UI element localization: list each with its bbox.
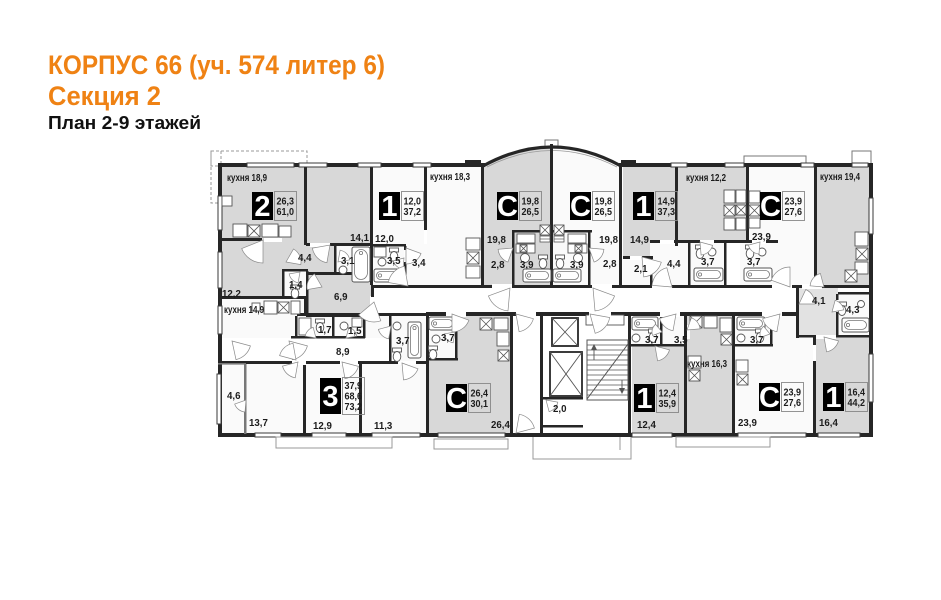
- svg-text:3,9: 3,9: [520, 260, 534, 271]
- svg-text:3,1: 3,1: [341, 256, 355, 267]
- svg-text:2: 2: [254, 191, 270, 223]
- svg-text:1: 1: [635, 191, 651, 223]
- svg-text:2,1: 2,1: [634, 264, 648, 275]
- svg-text:27,6: 27,6: [785, 207, 803, 218]
- svg-text:14,9: 14,9: [630, 235, 649, 246]
- svg-text:1,4: 1,4: [289, 280, 303, 291]
- svg-text:26,4: 26,4: [491, 420, 510, 431]
- svg-text:1: 1: [381, 191, 397, 223]
- svg-text:С: С: [760, 191, 781, 223]
- svg-text:1,7: 1,7: [318, 325, 331, 336]
- svg-text:3,7: 3,7: [396, 336, 409, 347]
- svg-text:12,4: 12,4: [637, 420, 656, 431]
- svg-text:2,8: 2,8: [491, 260, 505, 271]
- svg-text:12,2: 12,2: [222, 289, 241, 300]
- svg-text:37,3: 37,3: [658, 207, 676, 218]
- svg-text:кухня 12,2: кухня 12,2: [686, 173, 726, 184]
- svg-text:26,3: 26,3: [277, 196, 295, 207]
- svg-text:кухня 16,3: кухня 16,3: [687, 359, 727, 370]
- svg-text:3: 3: [322, 381, 338, 413]
- svg-text:23,9: 23,9: [752, 232, 771, 243]
- svg-text:кухня 18,9: кухня 18,9: [227, 173, 267, 184]
- svg-text:6,9: 6,9: [334, 292, 348, 303]
- svg-text:11,3: 11,3: [374, 421, 393, 432]
- svg-text:4,4: 4,4: [298, 253, 312, 264]
- svg-text:19,8: 19,8: [595, 196, 613, 207]
- svg-text:С: С: [759, 382, 780, 414]
- svg-text:37,9: 37,9: [345, 381, 363, 392]
- svg-text:4,1: 4,1: [812, 296, 826, 307]
- svg-text:С: С: [570, 191, 591, 223]
- svg-text:кухня 19,4: кухня 19,4: [820, 172, 860, 183]
- svg-text:12,4: 12,4: [659, 388, 677, 399]
- svg-text:кухня 14,9: кухня 14,9: [224, 305, 264, 316]
- svg-text:КОРПУС 66 (уч. 574 литер 6): КОРПУС 66 (уч. 574 литер 6): [48, 50, 385, 80]
- svg-text:С: С: [446, 383, 467, 415]
- svg-text:23,9: 23,9: [738, 418, 757, 429]
- svg-text:1,5: 1,5: [348, 326, 362, 337]
- svg-text:27,6: 27,6: [784, 398, 802, 409]
- svg-text:23,9: 23,9: [785, 196, 803, 207]
- svg-text:12,9: 12,9: [313, 421, 332, 432]
- svg-text:3,7: 3,7: [441, 333, 454, 344]
- svg-text:4,3: 4,3: [846, 305, 860, 316]
- svg-text:14,9: 14,9: [658, 196, 676, 207]
- svg-text:19,8: 19,8: [487, 235, 506, 246]
- svg-text:26,4: 26,4: [471, 388, 489, 399]
- svg-text:3,7: 3,7: [645, 335, 658, 346]
- svg-text:3,7: 3,7: [701, 257, 714, 268]
- svg-text:26,5: 26,5: [595, 207, 613, 218]
- svg-text:3,5: 3,5: [674, 335, 688, 346]
- svg-text:73,2: 73,2: [345, 402, 363, 413]
- svg-text:61,0: 61,0: [277, 207, 295, 218]
- svg-text:37,2: 37,2: [404, 207, 422, 218]
- svg-text:68,6: 68,6: [345, 392, 363, 403]
- svg-text:44,2: 44,2: [848, 398, 866, 409]
- svg-text:16,4: 16,4: [848, 387, 866, 398]
- svg-text:3,4: 3,4: [412, 258, 426, 269]
- svg-text:30,1: 30,1: [471, 399, 489, 410]
- svg-text:19,8: 19,8: [599, 235, 618, 246]
- svg-text:26,5: 26,5: [522, 207, 540, 218]
- svg-text:кухня 18,3: кухня 18,3: [430, 172, 470, 183]
- svg-text:35,9: 35,9: [659, 399, 677, 410]
- svg-text:16,4: 16,4: [819, 418, 838, 429]
- svg-text:19,8: 19,8: [522, 196, 540, 207]
- svg-text:14,1: 14,1: [350, 233, 369, 244]
- svg-text:С: С: [497, 191, 518, 223]
- svg-text:4,6: 4,6: [227, 391, 241, 402]
- svg-text:3,9: 3,9: [570, 260, 584, 271]
- svg-text:3,7: 3,7: [747, 257, 760, 268]
- svg-text:План 2-9 этажей: План 2-9 этажей: [48, 113, 201, 133]
- svg-text:23,9: 23,9: [784, 387, 802, 398]
- svg-text:12,0: 12,0: [404, 196, 422, 207]
- svg-text:Секция 2: Секция 2: [48, 81, 161, 111]
- svg-text:13,7: 13,7: [249, 418, 268, 429]
- svg-text:1: 1: [636, 383, 652, 415]
- svg-text:4,4: 4,4: [667, 259, 681, 270]
- svg-text:8,9: 8,9: [336, 347, 350, 358]
- svg-text:2,8: 2,8: [603, 259, 617, 270]
- svg-text:12,0: 12,0: [375, 234, 394, 245]
- svg-text:2,0: 2,0: [553, 404, 566, 415]
- svg-text:3,7: 3,7: [750, 335, 763, 346]
- svg-text:3,5: 3,5: [387, 256, 401, 267]
- svg-text:1: 1: [825, 382, 841, 414]
